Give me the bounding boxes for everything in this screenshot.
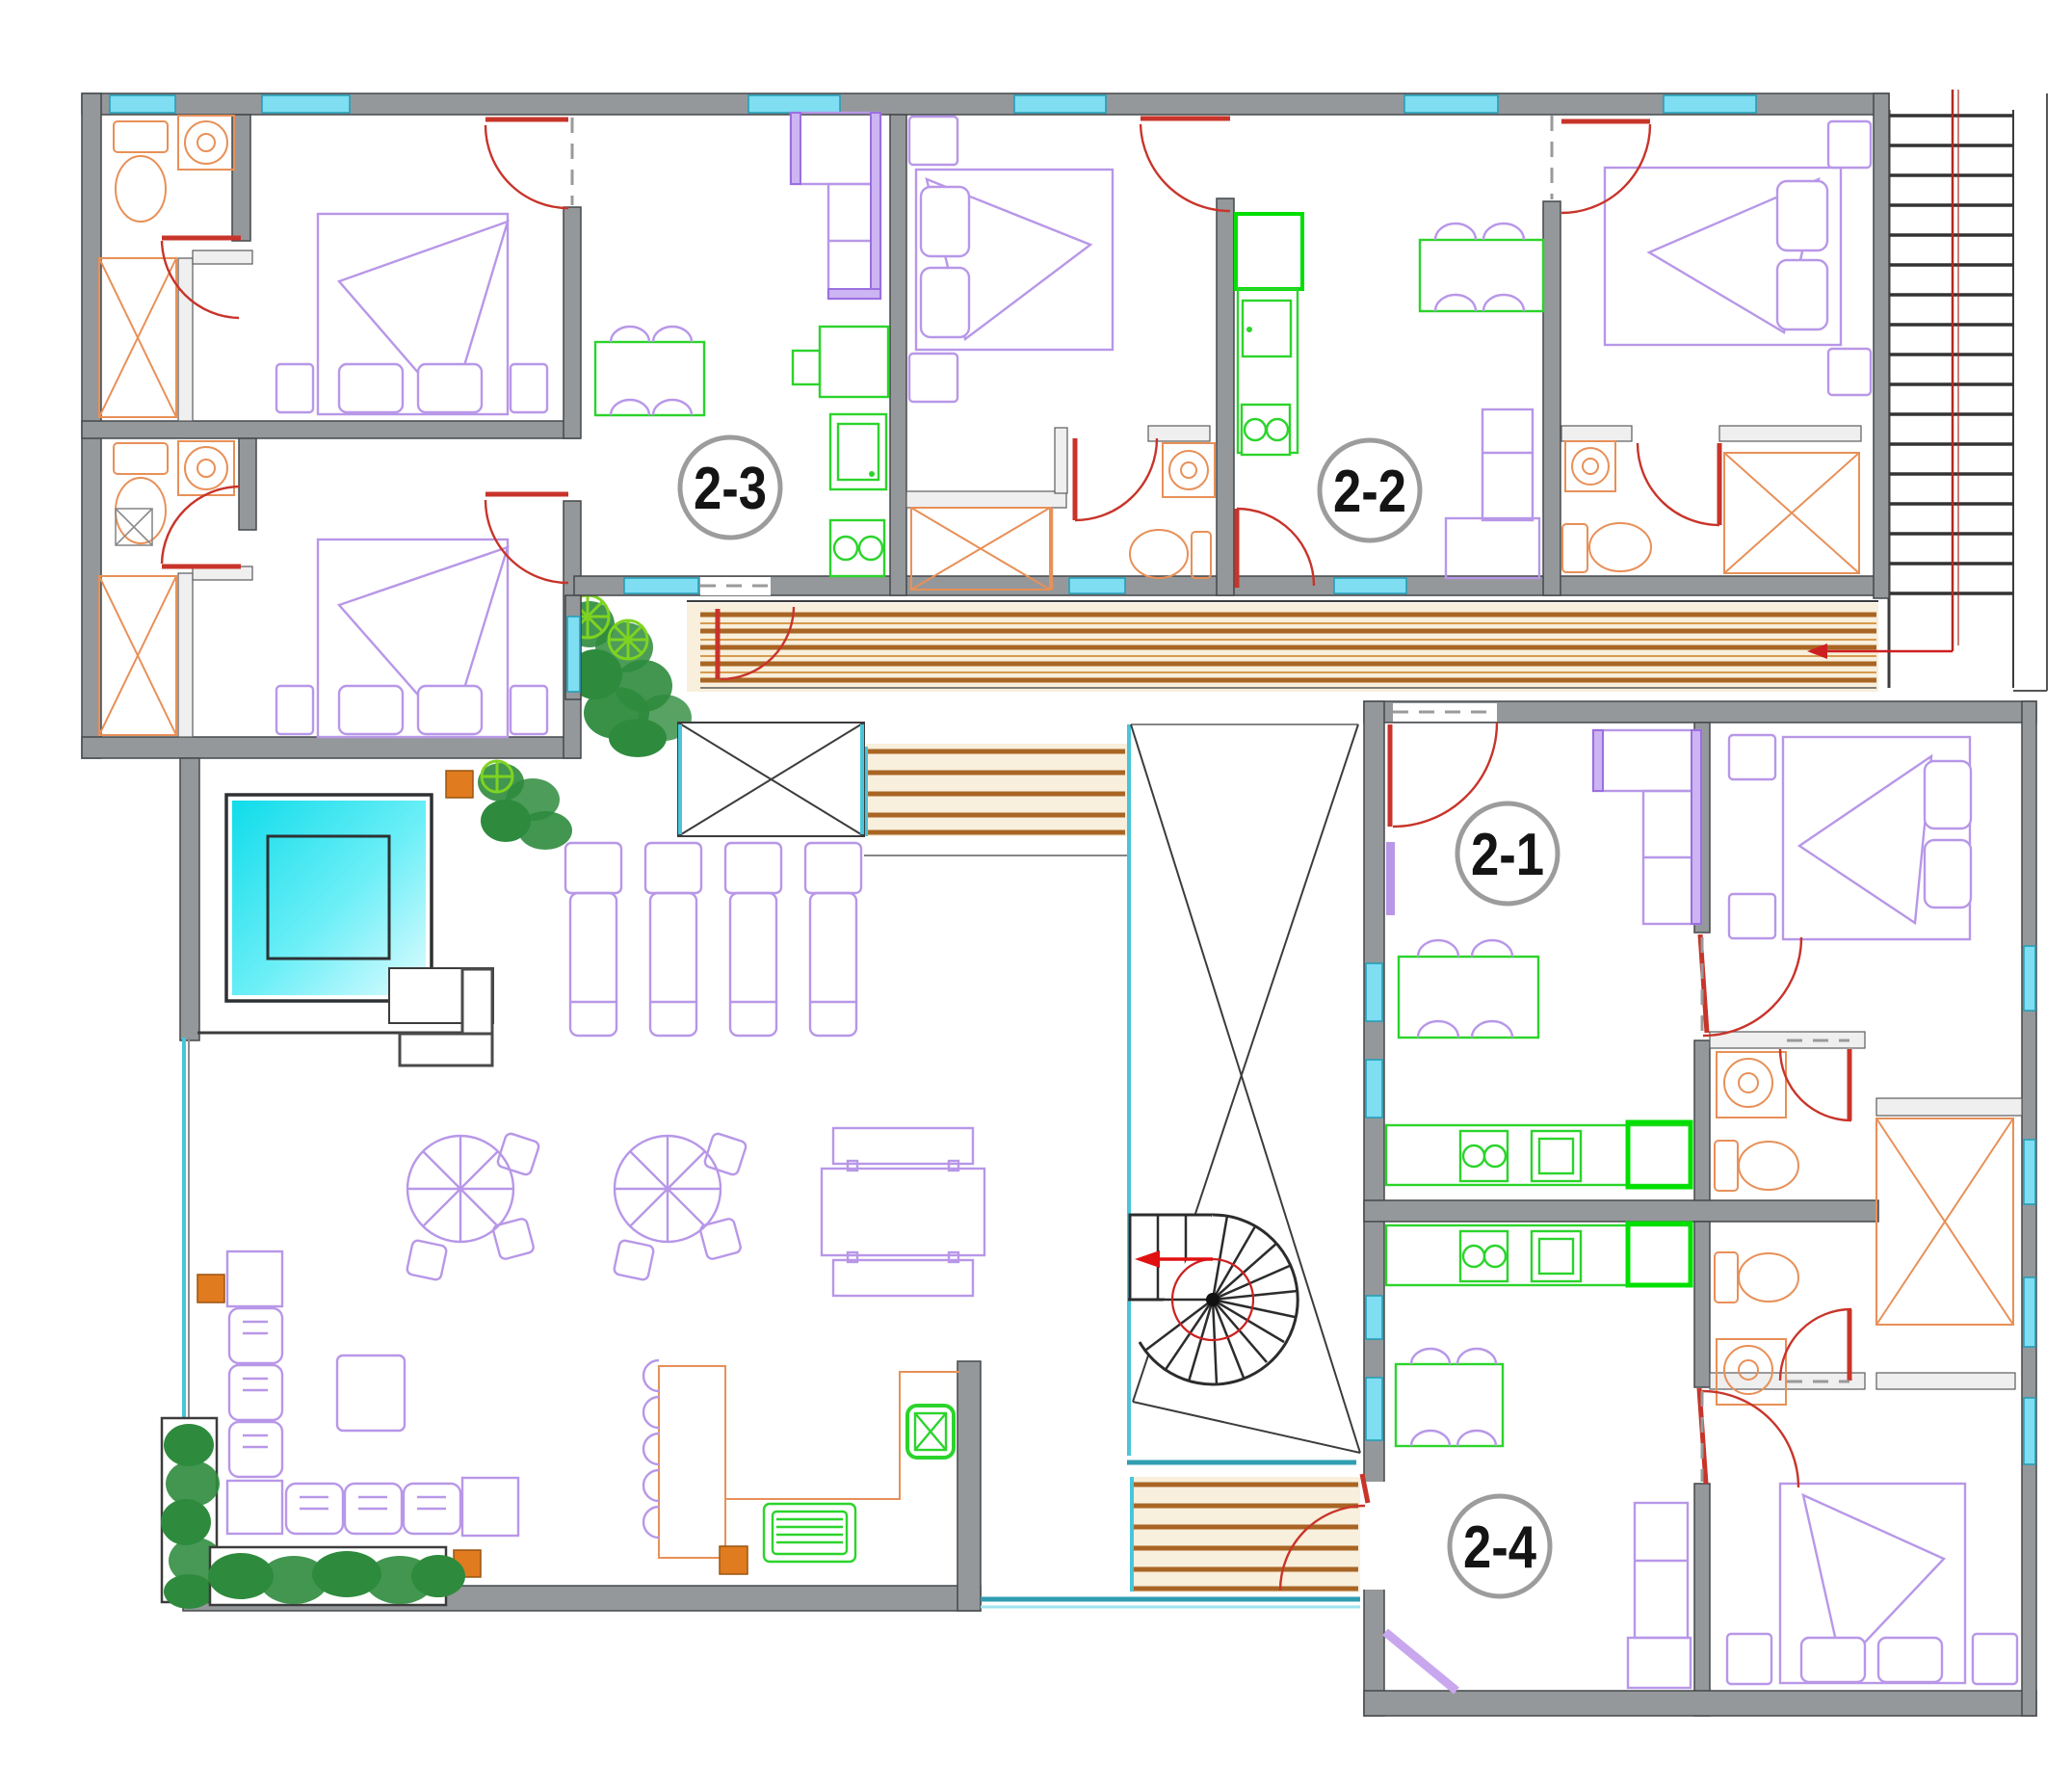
svg-text:2-1: 2-1 — [1471, 822, 1544, 888]
svg-text:2-2: 2-2 — [1333, 459, 1406, 525]
svg-text:2-4: 2-4 — [1463, 1514, 1536, 1581]
svg-text:2-3: 2-3 — [694, 456, 767, 522]
